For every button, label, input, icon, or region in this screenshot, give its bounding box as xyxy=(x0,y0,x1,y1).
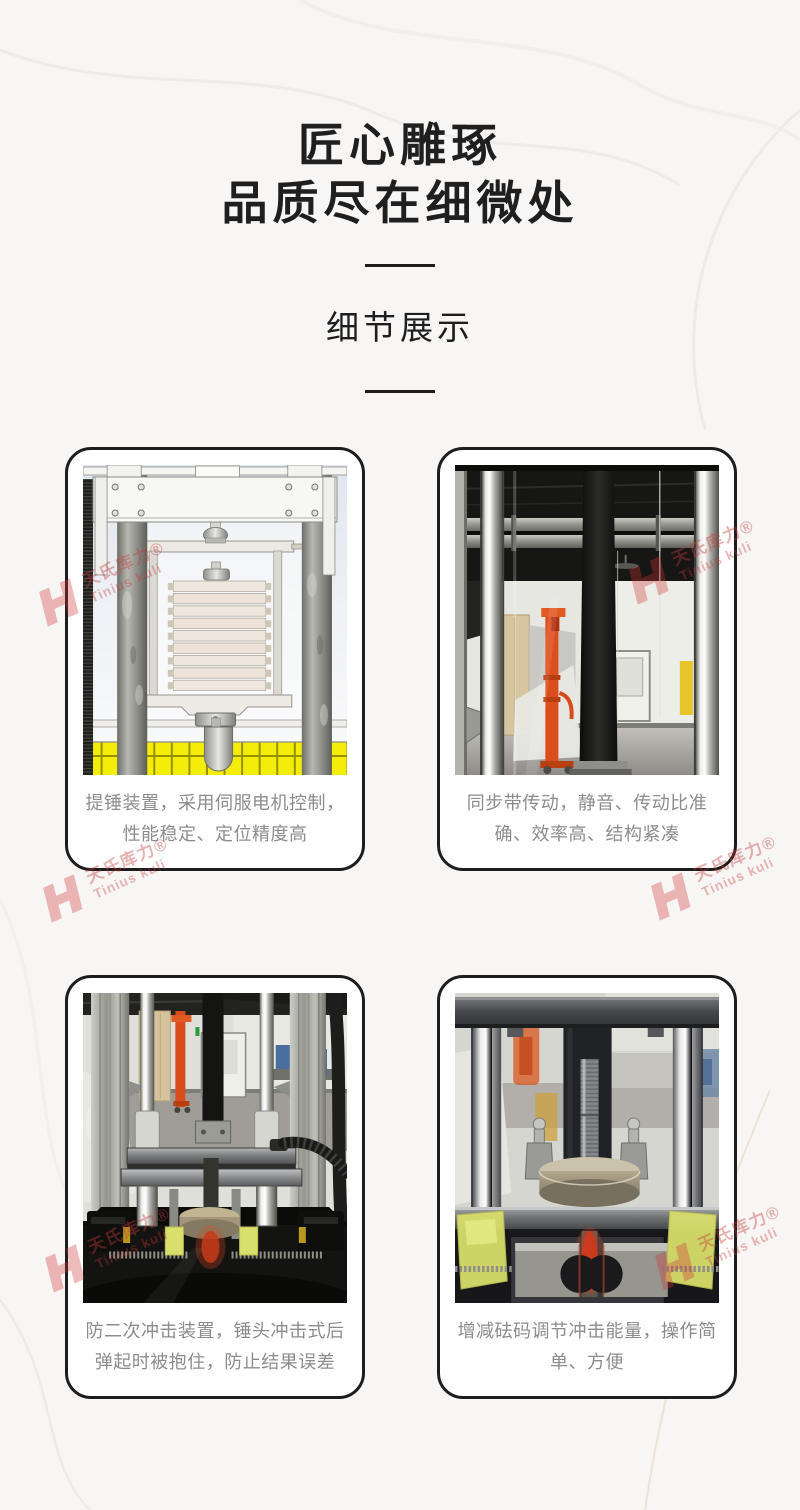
detail-card-anti-secondary-impact: 防二次冲击装置，锤头冲击式后弹起时被抱住，防止结果误差 xyxy=(65,975,365,1399)
product-detail-page: 匠心雕琢 品质尽在细微处 细节展示 xyxy=(0,0,800,1510)
photo-timing-belt-drive xyxy=(455,465,719,775)
photo-anti-secondary-impact xyxy=(83,993,347,1303)
card-caption: 增减砝码调节冲击能量，操作简单、方便 xyxy=(455,1316,719,1378)
page-title-line2: 品质尽在细微处 xyxy=(0,174,800,232)
card-caption: 同步带传动，静音、传动比准确、效率高、结构紧凑 xyxy=(455,788,719,850)
brand-logo-watermark-icon xyxy=(642,868,701,925)
section-subtitle: 细节展示 xyxy=(0,301,800,349)
detail-card-hammer-lift: 提锤装置，采用伺服电机控制，性能稳定、定位精度高 xyxy=(65,447,365,871)
card-caption: 提锤装置，采用伺服电机控制，性能稳定、定位精度高 xyxy=(83,788,347,850)
photo-weight-adjustment xyxy=(455,993,719,1303)
photo-servo-hammer-lift-cad xyxy=(83,465,347,775)
brand-logo-watermark-icon xyxy=(34,870,93,927)
detail-card-weight-adjustment: 增减砝码调节冲击能量，操作简单、方便 xyxy=(437,975,737,1399)
page-title-line1: 匠心雕琢 xyxy=(0,116,800,174)
divider-top xyxy=(365,264,435,267)
page-title: 匠心雕琢 品质尽在细微处 xyxy=(0,116,800,232)
divider-bottom xyxy=(365,390,435,393)
detail-card-timing-belt: 同步带传动，静音、传动比准确、效率高、结构紧凑 xyxy=(437,447,737,871)
card-caption: 防二次冲击装置，锤头冲击式后弹起时被抱住，防止结果误差 xyxy=(83,1316,347,1378)
